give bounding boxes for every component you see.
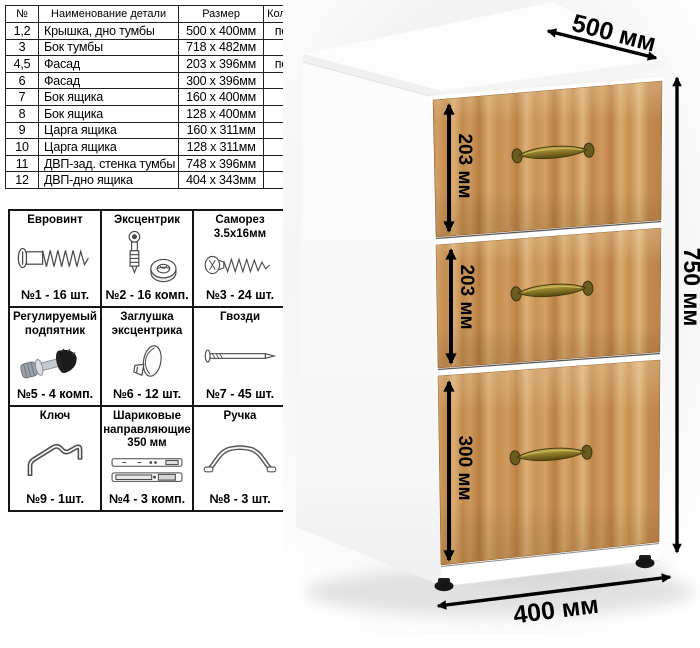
cabinet-side-panel [296,56,442,586]
dimension-label-drawer3: 300 мм [454,435,475,500]
cabinet-illustration: 500 мм 750 мм 400 мм 203 мм 203 мм 300 м… [0,0,700,648]
dimension-label-height: 750 мм [679,248,700,327]
dimension-label-drawer1: 203 мм [454,133,475,198]
dimension-label-drawer2: 203 мм [456,264,477,329]
assembly-sheet: № Наименование детали Размер Количество … [0,0,700,648]
